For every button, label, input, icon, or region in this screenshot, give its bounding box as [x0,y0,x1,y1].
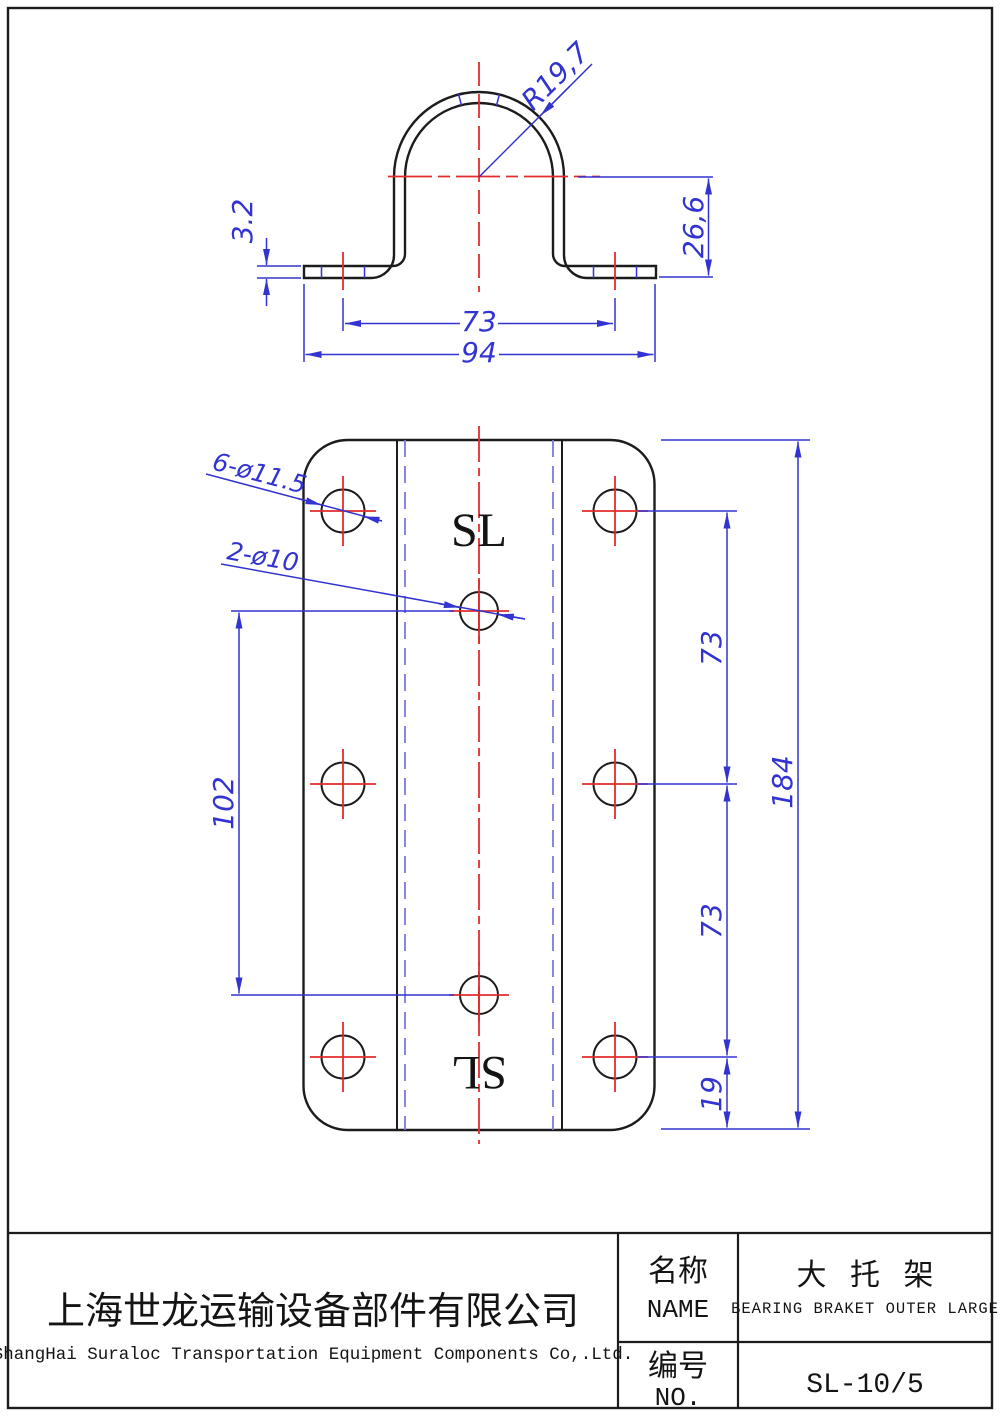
brand-mark-bottom: SL [451,1046,507,1099]
company-name-en: ShangHai Suraloc Transportation Equipmen… [0,1345,633,1365]
part-number: SL-10/5 [806,1370,924,1401]
dim-label-thickness: 3.2 [226,199,259,244]
sheet-background [0,0,1000,1416]
drawing-sheet: R19,7 3.2 26,6 73 94 [0,0,1000,1416]
dim-label-upper-row: 73 [695,630,728,666]
dim-label-lower-row: 73 [695,903,728,939]
brand-mark-top: SL [451,504,507,557]
dim-label-height: 26,6 [677,196,710,258]
company-name-cn: 上海世龙运输设备部件有限公司 [47,1291,579,1333]
name-label-cn: 名称 [648,1255,708,1288]
dim-label-center-spacing: 102 [207,776,240,829]
cad-drawing-canvas: R19,7 3.2 26,6 73 94 [0,0,1000,1416]
dim-label-bottom-offset: 19 [695,1076,728,1112]
part-name-cn: 大 托 架 [797,1259,942,1292]
no-label-en: NO. [655,1383,702,1413]
part-name-en: BEARING BRAKET OUTER LARGE [731,1300,999,1318]
name-label-en: NAME [647,1295,709,1325]
dim-label-overall-width: 94 [461,336,497,369]
dim-label-hole-spacing: 73 [461,305,497,338]
no-label-cn: 编号 [648,1350,708,1383]
dim-label-overall-length: 184 [766,755,799,808]
